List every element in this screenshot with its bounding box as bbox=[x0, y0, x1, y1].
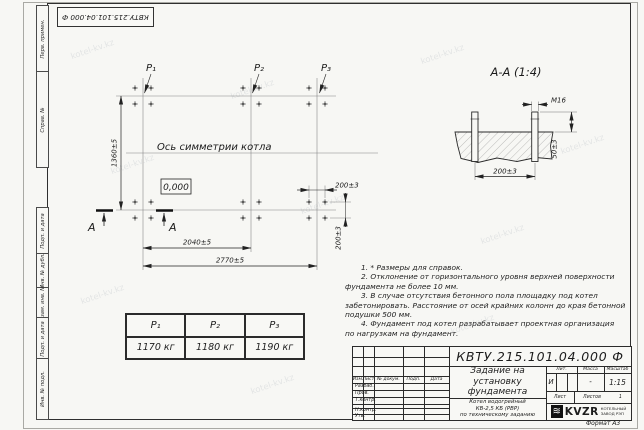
dim-bolt-spacing-h: 200±3 bbox=[335, 182, 359, 190]
doc-title-line: установку bbox=[473, 377, 522, 388]
foundation-plan-view: P₁ P₂ P₃ Ось симметрии котла 0,000 1360±… bbox=[80, 50, 400, 280]
sheets-cell: Листов 1 bbox=[574, 391, 631, 403]
section-view-a-a: А-А (1:4) М16 50±3 200±3 bbox=[398, 55, 644, 200]
load-table-header-p3: P₃ bbox=[245, 314, 304, 337]
margin-cell-inv-podl: Инв. № подл. bbox=[36, 358, 49, 420]
load-point-label-p3: P₃ bbox=[321, 63, 331, 74]
dim-thread-m16: М16 bbox=[551, 97, 566, 105]
change-col-list: Лист bbox=[363, 376, 374, 383]
note-line: 1. * Размеры для справок. bbox=[345, 263, 633, 272]
margin-label: Подп. и дата bbox=[40, 321, 46, 356]
margin-label: Взам. инв. № bbox=[40, 285, 46, 320]
load-table-header-p1: P₁ bbox=[126, 314, 185, 337]
change-col-izm: Изм. bbox=[353, 376, 363, 383]
plan-dimension-lines bbox=[121, 96, 346, 266]
kvzr-logo-caption: КОТЕЛЬНЫЙ ЗАВОД РЭП bbox=[601, 407, 627, 416]
title-block: Изм. Лист № докум. Подп. Дата Разраб. Пр… bbox=[352, 346, 632, 421]
lit-value: И bbox=[546, 373, 556, 391]
scale-header: Масштаб bbox=[604, 366, 631, 373]
load-table-value-p1: 1170 кг bbox=[126, 337, 185, 360]
sheet-label: Лист bbox=[546, 391, 574, 403]
role-razrab: Разраб. bbox=[353, 383, 376, 390]
section-letter-right: А bbox=[168, 221, 177, 234]
notes-block: 1. * Размеры для справок. 2. Отклонение … bbox=[345, 263, 633, 338]
product-description: Котел водогрейный КВ-2,5 КБ (РВР) по тех… bbox=[449, 398, 546, 420]
dim-bolt-spacing-v: 200±3 bbox=[335, 226, 343, 250]
role-utv: Утв. bbox=[353, 414, 376, 421]
corner-doc-stamp: КВТУ.215.101.04.000 Ф bbox=[57, 7, 154, 27]
note-line: подушки 500 мм. bbox=[345, 310, 633, 319]
doc-number: КВТУ.215.101.04.000 Ф bbox=[449, 347, 631, 366]
mass-header: Масса bbox=[577, 366, 604, 373]
load-point-label-p1: P₁ bbox=[146, 63, 156, 74]
section-title: А-А (1:4) bbox=[489, 65, 541, 79]
dim-width-2770: 2770±5 bbox=[216, 257, 245, 265]
margin-cell-podp-data-1: Подп. и дата bbox=[36, 207, 49, 255]
dim-height-1360: 1360±5 bbox=[111, 138, 119, 167]
margin-label: Справ. № bbox=[40, 107, 46, 132]
product-line: по техническому заданию bbox=[460, 412, 535, 419]
load-table-header-p2: P₂ bbox=[185, 314, 244, 337]
note-line: 2. Отклонение от горизонтального уровня … bbox=[345, 272, 633, 281]
doc-title-line: Задание на bbox=[470, 366, 525, 377]
margin-label: Инв. № подл. bbox=[40, 371, 46, 407]
lit-header: Лит. bbox=[546, 366, 577, 373]
elevation-value: 0,000 bbox=[163, 183, 189, 193]
margin-label: Подп. и дата bbox=[40, 213, 46, 248]
note-line: 3. В случае отсутствия бетонного пола пл… bbox=[345, 291, 633, 300]
sheets-label: Листов bbox=[583, 395, 601, 400]
load-table-value-p2: 1180 кг bbox=[185, 337, 244, 360]
margin-label: Перв. примен. bbox=[40, 20, 46, 59]
margin-cell-vzam-inv: Взам. инв. № bbox=[36, 287, 49, 319]
load-table-value-p3: 1190 кг bbox=[245, 337, 304, 360]
load-table: P₁ P₂ P₃ 1170 кг 1180 кг 1190 кг bbox=[125, 313, 305, 360]
dim-protrusion-50: 50±3 bbox=[551, 139, 559, 158]
role-prov: Пров. bbox=[353, 390, 376, 397]
drawing-sheet: kotel-kv.kz kotel-kv.kz kotel-kv.kz kote… bbox=[0, 0, 644, 430]
margin-label: Инв. № дубл. bbox=[40, 253, 46, 289]
mass-value: - bbox=[577, 373, 604, 391]
role-tkontr: Т.контр. bbox=[353, 397, 376, 404]
note-line: 4. Фундамент под котел разрабатывает про… bbox=[345, 319, 633, 328]
kvzr-logo-icon: ≋ bbox=[551, 405, 563, 418]
product-line: Котел водогрейный bbox=[469, 399, 526, 406]
dim-width-2040: 2040±5 bbox=[183, 239, 212, 247]
company-logo: ≋ KVZR КОТЕЛЬНЫЙ ЗАВОД РЭП bbox=[546, 403, 631, 420]
doc-title-line: фундамента bbox=[468, 387, 528, 398]
scale-value: 1:15 bbox=[604, 373, 631, 391]
margin-cell-podp-data-2: Подп. и дата bbox=[36, 317, 49, 360]
logo-caption-line: ЗАВОД РЭП bbox=[601, 412, 627, 417]
format-note: Формат А3 bbox=[586, 420, 620, 427]
corner-doc-number: КВТУ.215.101.04.000 Ф bbox=[62, 13, 149, 22]
change-col-dokum: № докум. bbox=[374, 376, 403, 383]
margin-cell-sprav-no: Справ. № bbox=[36, 71, 49, 168]
section-letter-left: А bbox=[87, 221, 96, 234]
product-line: КВ-2,5 КБ (РВР) bbox=[476, 406, 519, 413]
margin-cell-inv-dubl: Инв. № дубл. bbox=[36, 253, 49, 289]
load-point-label-p2: P₂ bbox=[254, 63, 264, 74]
load-point-leaders bbox=[145, 74, 327, 93]
sheets-value: 1 bbox=[619, 395, 622, 400]
note-line: фундамента не более 10 мм. bbox=[345, 282, 633, 291]
dim-spacing-200: 200±3 bbox=[493, 168, 517, 176]
kvzr-logo-text: KVZR bbox=[565, 406, 599, 418]
note-line: забетонировать. Расстояние от осей крайн… bbox=[345, 301, 633, 310]
axis-of-symmetry-label: Ось симметрии котла bbox=[157, 142, 272, 153]
note-line: по нагрузкам на фундамент. bbox=[345, 329, 633, 338]
margin-cell-perv-primen: Перв. примен. bbox=[36, 5, 49, 73]
change-col-podp: Подп. bbox=[403, 376, 424, 383]
change-col-data: Дата bbox=[424, 376, 449, 383]
doc-title: Задание на установку фундамента bbox=[449, 366, 546, 398]
